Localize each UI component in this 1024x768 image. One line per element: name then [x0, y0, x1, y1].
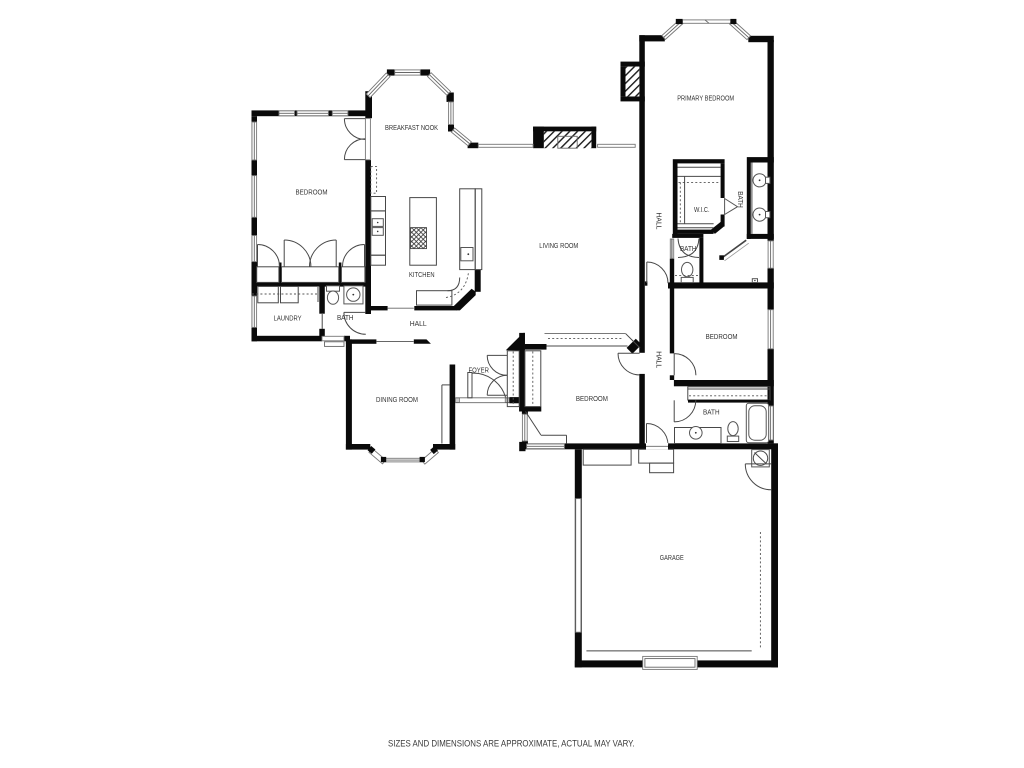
svg-text:HALL: HALL: [655, 213, 664, 230]
svg-text:BEDROOM: BEDROOM: [576, 394, 608, 403]
svg-text:BATH: BATH: [680, 244, 697, 253]
svg-text:HALL: HALL: [654, 351, 663, 368]
svg-text:SIZES AND DIMENSIONS ARE APPRO: SIZES AND DIMENSIONS ARE APPROXIMATE, AC…: [388, 738, 635, 749]
svg-text:GARAGE: GARAGE: [660, 553, 684, 562]
svg-text:DINING ROOM: DINING ROOM: [376, 395, 418, 404]
svg-text:W.I.C.: W.I.C.: [694, 205, 710, 214]
svg-text:BATH: BATH: [736, 191, 745, 208]
svg-text:BREAKFAST NOOK: BREAKFAST NOOK: [385, 123, 438, 132]
svg-text:FOYER: FOYER: [468, 366, 489, 375]
svg-text:BATH: BATH: [337, 313, 354, 322]
svg-text:BATH: BATH: [703, 408, 720, 417]
svg-text:KITCHEN: KITCHEN: [409, 270, 435, 279]
svg-text:BEDROOM: BEDROOM: [296, 187, 328, 196]
svg-text:HALL: HALL: [410, 319, 427, 328]
svg-text:LIVING ROOM: LIVING ROOM: [539, 241, 578, 250]
svg-text:BEDROOM: BEDROOM: [706, 332, 738, 341]
svg-text:LAUNDRY: LAUNDRY: [274, 314, 302, 323]
svg-text:PRIMARY BEDROOM: PRIMARY BEDROOM: [677, 94, 734, 103]
